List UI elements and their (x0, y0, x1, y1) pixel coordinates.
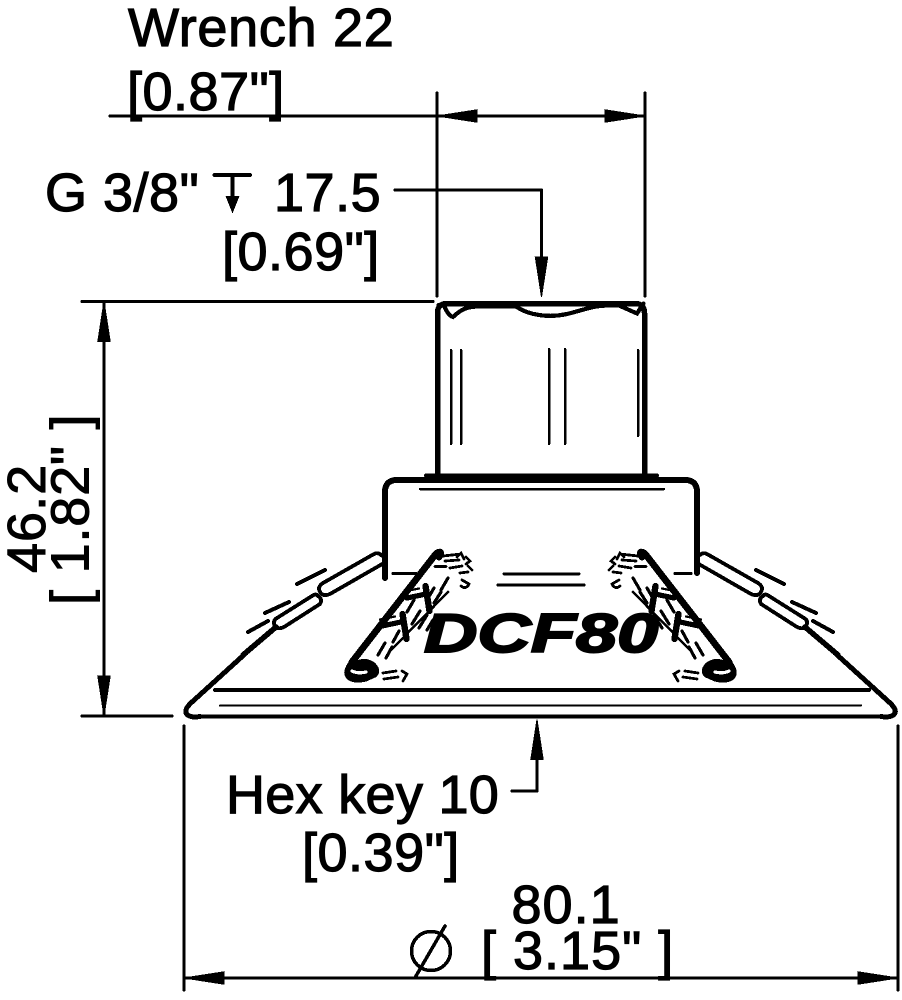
svg-text:[0.39"]: [0.39"] (302, 823, 460, 883)
svg-text:[0.87"]: [0.87"] (127, 62, 285, 122)
svg-text:17.5: 17.5 (274, 163, 381, 223)
svg-text:Wrench 22: Wrench 22 (128, 0, 394, 58)
svg-text:G 3/8": G 3/8" (45, 163, 199, 223)
svg-text:DCF80: DCF80 (424, 602, 658, 664)
svg-text:Hex key 10: Hex key 10 (226, 765, 499, 825)
svg-text:[0.69"]: [0.69"] (222, 222, 380, 282)
svg-text:[ 1.82" ]: [ 1.82" ] (41, 414, 101, 605)
svg-text:[ 3.15" ]: [ 3.15" ] (481, 921, 674, 981)
